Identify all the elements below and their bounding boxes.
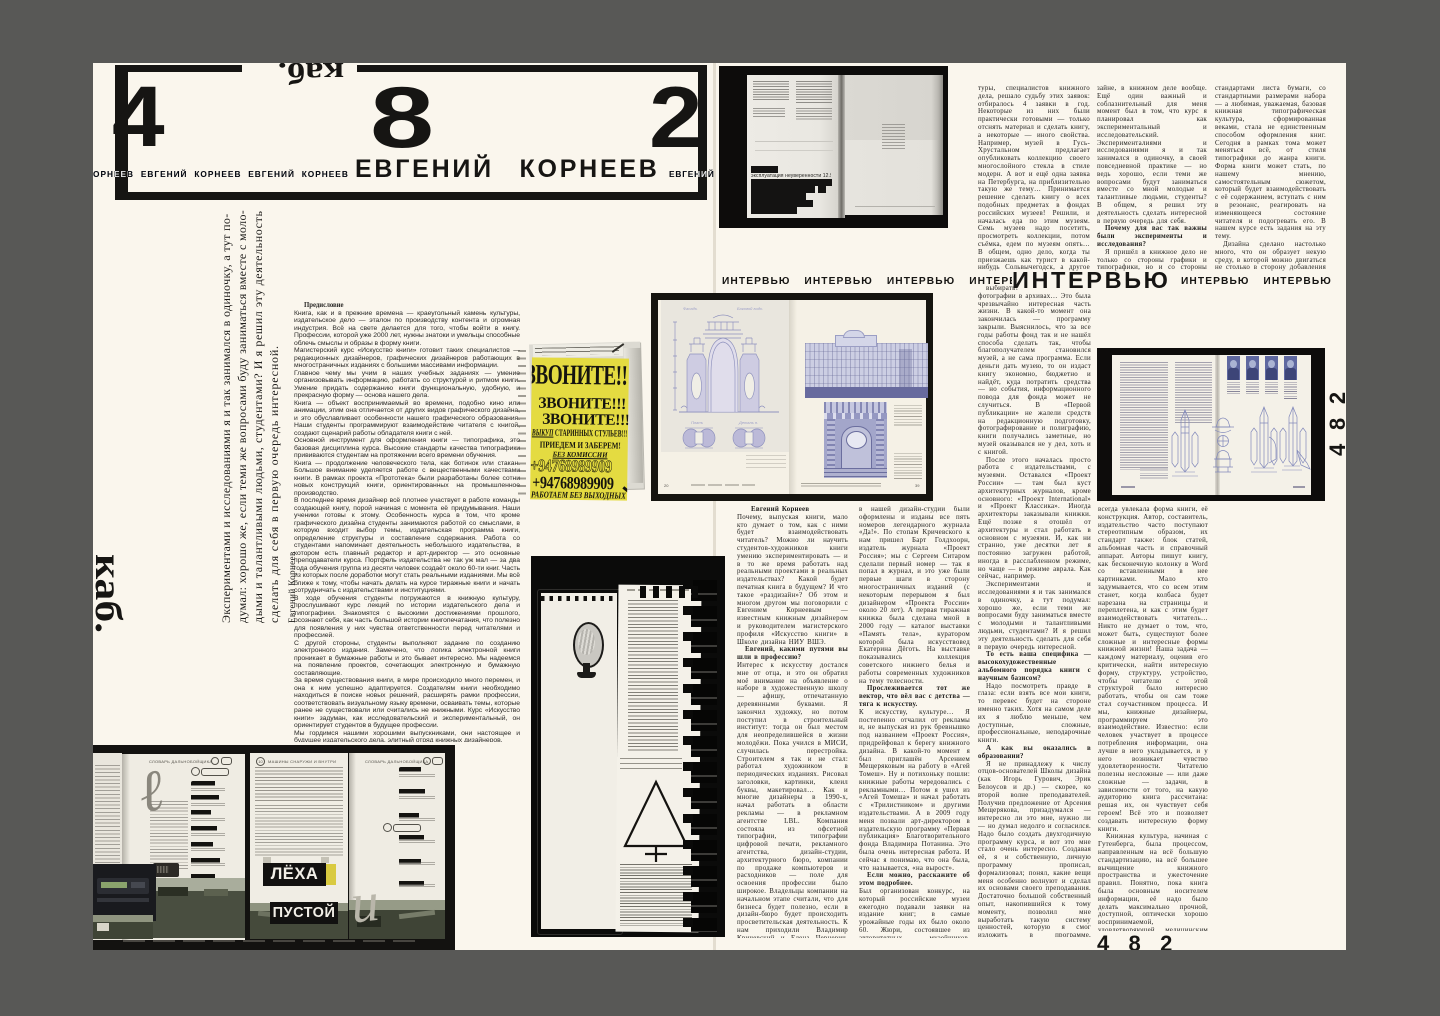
svg-text:Боковой видъ: Боковой видъ <box>737 306 763 311</box>
svg-text:Планъ: Планъ <box>691 420 704 425</box>
svg-text:Деталь п.: Деталь п. <box>738 420 758 425</box>
svg-text:Фасадъ: Фасадъ <box>683 306 698 311</box>
